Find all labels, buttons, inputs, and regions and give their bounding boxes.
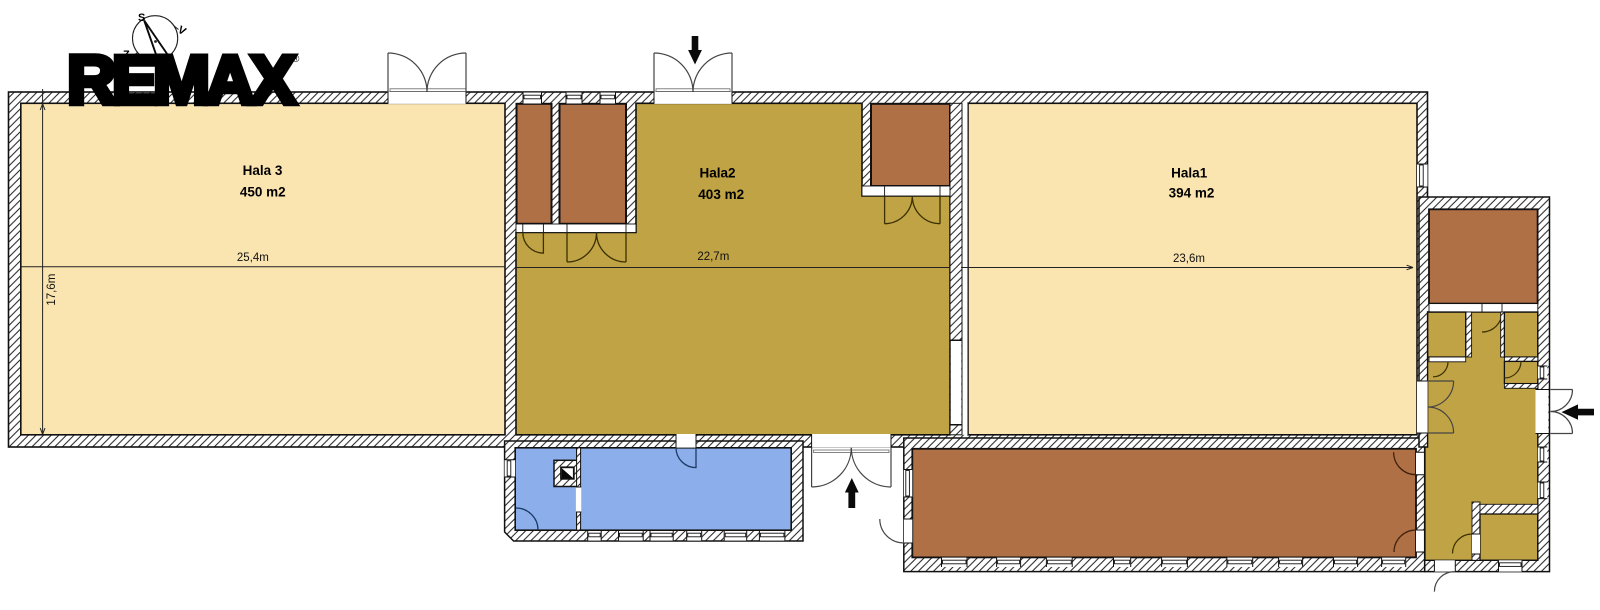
svg-text:Hala2: Hala2 <box>699 166 735 181</box>
svg-text:394 m2: 394 m2 <box>1169 186 1215 201</box>
svg-text:®: ® <box>292 54 300 65</box>
svg-text:450 m2: 450 m2 <box>240 185 286 200</box>
svg-text:25,4m: 25,4m <box>237 252 269 264</box>
svg-text:23,6m: 23,6m <box>1173 253 1205 265</box>
svg-text:Hala1: Hala1 <box>1171 166 1208 181</box>
svg-text:REMAX: REMAX <box>67 42 296 119</box>
svg-text:17,6m: 17,6m <box>46 274 58 306</box>
svg-text:Hala 3: Hala 3 <box>243 163 283 178</box>
svg-text:22,7m: 22,7m <box>697 251 729 263</box>
svg-text:S: S <box>138 12 145 24</box>
svg-text:403 m2: 403 m2 <box>698 187 744 202</box>
